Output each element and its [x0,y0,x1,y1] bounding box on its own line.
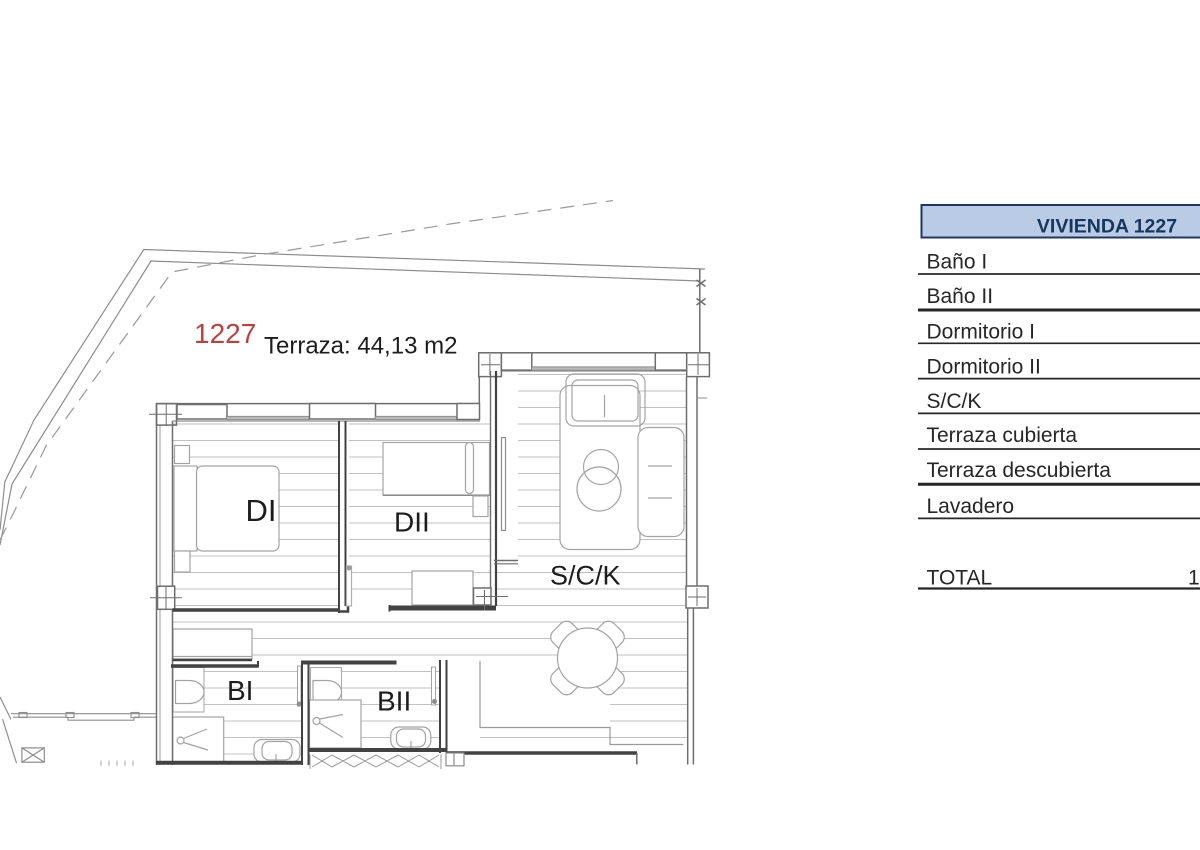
svg-text:Terraza: 44,13 m2: Terraza: 44,13 m2 [264,333,457,360]
svg-text:S/C/K: S/C/K [550,561,621,591]
svg-text:S/C/K: S/C/K [927,390,982,413]
svg-text:Terraza descubierta: Terraza descubierta [927,459,1112,482]
svg-text:1: 1 [1188,567,1200,590]
svg-text:TOTAL: TOTAL [927,567,993,590]
svg-text:DII: DII [394,507,430,538]
svg-text:BI: BI [227,675,253,706]
svg-text:Terraza cubierta: Terraza cubierta [927,424,1078,447]
svg-text:Baño II: Baño II [927,285,994,308]
svg-text:Lavadero: Lavadero [927,495,1015,518]
svg-text:DI: DI [246,493,277,528]
svg-text:1227: 1227 [194,318,256,349]
svg-text:VIVIENDA 1227: VIVIENDA 1227 [1037,216,1177,238]
svg-text:BII: BII [377,686,411,717]
svg-text:Baño I: Baño I [927,251,988,274]
svg-text:Dormitorio II: Dormitorio II [927,356,1041,379]
svg-text:Dormitorio I: Dormitorio I [927,321,1036,344]
